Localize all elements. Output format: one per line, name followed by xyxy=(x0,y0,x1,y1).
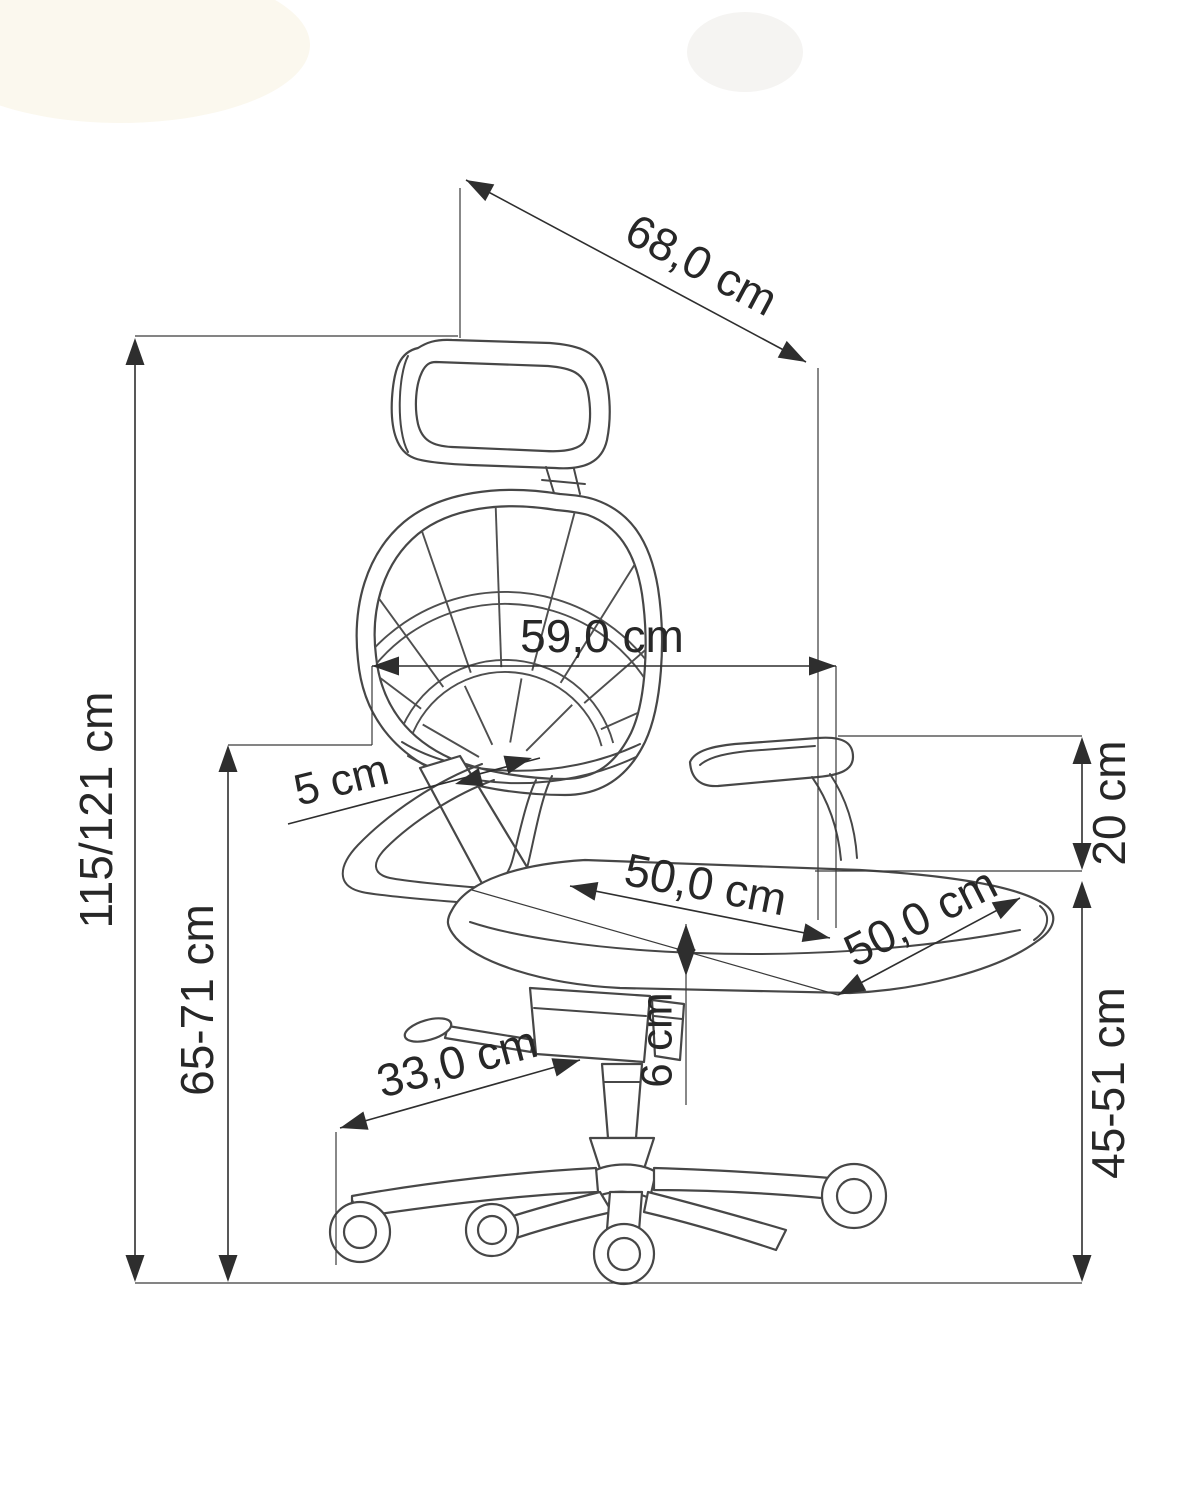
dimension-label-backrest-seat-gap: 20 cm xyxy=(1083,740,1135,865)
dimension-backrest-seat-gap: 20 cm xyxy=(815,736,1135,871)
dimension-armrest-height: 65-71 cm xyxy=(171,745,372,1282)
arrowhead-icon xyxy=(778,341,811,371)
dimension-label-armrest-pad-adjustment: 5 cm xyxy=(289,745,393,816)
arrowhead-icon xyxy=(337,1112,368,1138)
scan-artifact-smudge xyxy=(687,12,803,92)
arrowhead-icon xyxy=(462,172,495,202)
arrowhead-icon xyxy=(1073,881,1092,908)
arrowhead-icon xyxy=(809,657,836,676)
dimension-label-seat-height: 45-51 cm xyxy=(1082,987,1134,1179)
arrowhead-icon xyxy=(219,1255,238,1282)
chair-illustration xyxy=(242,340,1053,1284)
dimension-seat-height: 45-51 cm xyxy=(1073,881,1135,1282)
arrowhead-icon xyxy=(126,338,145,365)
chair-far-armrest xyxy=(690,738,857,860)
dimension-label-armrest-height: 65-71 cm xyxy=(171,904,223,1096)
arrowhead-icon xyxy=(219,745,238,772)
dimension-label-headrest-diagonal: 68,0 cm xyxy=(617,203,786,326)
diagram-canvas: 115/121 cm 65-71 cm 68,0 cm 59,0 cm 5 cm xyxy=(0,0,1199,1500)
dimension-label-seat-thickness: 6 cm xyxy=(633,992,682,1087)
dimension-label-overall-height: 115/121 cm xyxy=(70,692,122,929)
chair-headrest xyxy=(392,340,610,494)
dimension-diagram: 115/121 cm 65-71 cm 68,0 cm 59,0 cm 5 cm xyxy=(0,0,1199,1500)
arrowhead-icon xyxy=(126,1255,145,1282)
dimension-label-backrest-width: 59,0 cm xyxy=(520,610,684,662)
scan-artifact-blob xyxy=(0,0,310,123)
arrowhead-icon xyxy=(1073,1255,1092,1282)
